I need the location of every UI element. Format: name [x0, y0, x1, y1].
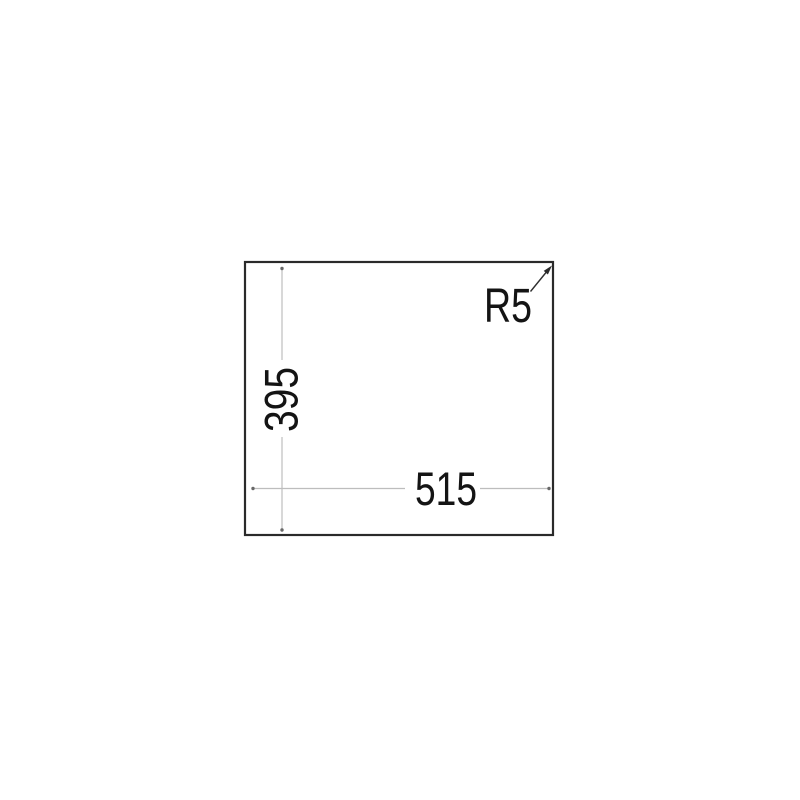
height-dimension-end-dot-top: [280, 267, 283, 270]
dimension-drawing: 395 515 R5: [0, 0, 800, 800]
radius-leader-line: [531, 273, 547, 292]
height-dimension: 395: [255, 267, 308, 532]
width-dimension-label: 515: [415, 462, 477, 515]
width-dimension: 515: [251, 462, 550, 515]
height-dimension-end-dot-bottom: [280, 528, 283, 531]
height-dimension-label: 395: [255, 367, 308, 432]
corner-radius-label: R5: [484, 280, 532, 333]
width-dimension-end-dot-left: [251, 487, 254, 490]
corner-radius-callout: R5: [484, 266, 552, 334]
width-dimension-end-dot-right: [547, 487, 550, 490]
drawing-canvas: 395 515 R5: [0, 0, 800, 800]
